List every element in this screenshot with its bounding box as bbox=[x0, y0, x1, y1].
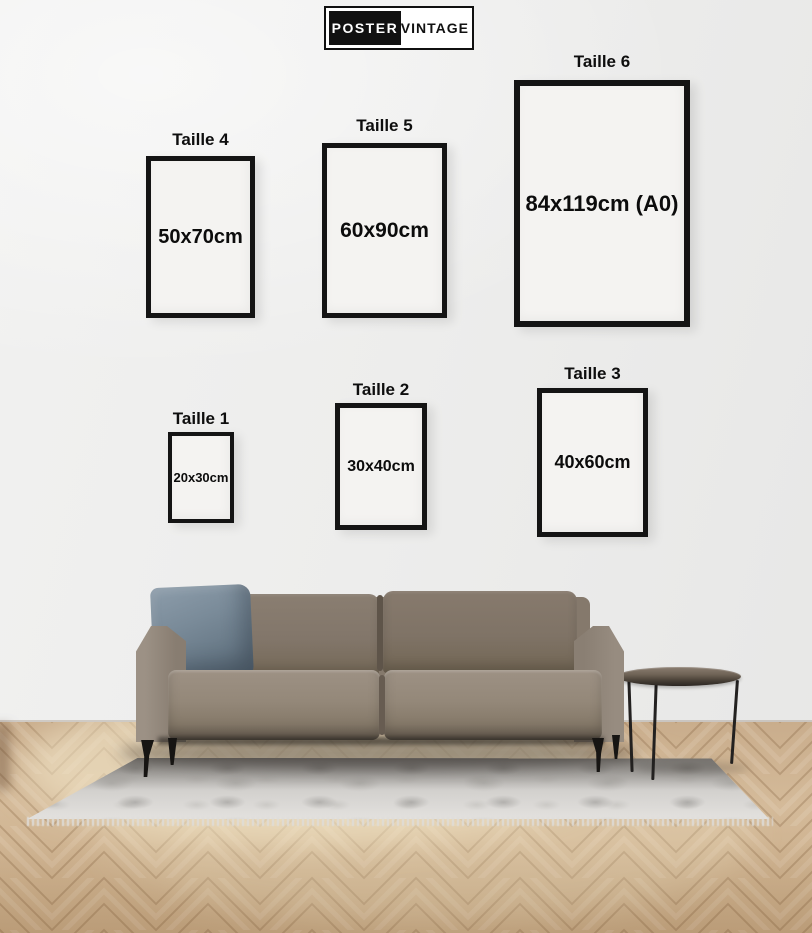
poster-size-guide-scene: POSTER VINTAGE Taille 4 Taille 5 Taille … bbox=[0, 0, 812, 933]
size-dimensions-taille-1: 20x30cm bbox=[174, 470, 229, 485]
logo-vintage-segment: VINTAGE bbox=[401, 11, 469, 45]
sofa bbox=[130, 585, 630, 780]
sofa-back-cushion-right bbox=[383, 591, 577, 673]
size-dimensions-taille-5: 60x90cm bbox=[340, 219, 429, 243]
sofa-seat-cushion-right bbox=[384, 670, 602, 740]
sofa-seat-cushion-left bbox=[168, 670, 380, 740]
sofa-leg-rear-right bbox=[612, 735, 620, 759]
size-frame-taille-3: 40x60cm bbox=[537, 388, 648, 537]
size-dimensions-taille-3: 40x60cm bbox=[554, 452, 630, 473]
sofa-seat-cushion-gap bbox=[379, 675, 385, 735]
size-frame-taille-1: 20x30cm bbox=[168, 432, 234, 523]
logo-poster-segment: POSTER bbox=[329, 11, 401, 45]
sofa-leg-front-left bbox=[140, 740, 154, 777]
size-label-taille-5: Taille 5 bbox=[322, 116, 447, 136]
size-label-taille-3: Taille 3 bbox=[537, 364, 648, 384]
size-frame-taille-6: 84x119cm (A0) bbox=[514, 80, 690, 327]
sofa-base-shadow bbox=[158, 737, 604, 745]
sofa-leg-rear-left bbox=[168, 738, 177, 765]
size-frame-taille-4: 50x70cm bbox=[146, 156, 255, 318]
size-dimensions-taille-6: 84x119cm (A0) bbox=[526, 191, 679, 217]
wall-corner-shadow bbox=[0, 724, 10, 790]
size-dimensions-taille-4: 50x70cm bbox=[158, 226, 243, 249]
size-label-taille-6: Taille 6 bbox=[514, 52, 690, 72]
size-frame-taille-2: 30x40cm bbox=[335, 403, 427, 530]
table-top bbox=[617, 667, 741, 686]
size-label-taille-2: Taille 2 bbox=[335, 380, 427, 400]
size-label-taille-1: Taille 1 bbox=[160, 409, 242, 429]
size-label-taille-4: Taille 4 bbox=[146, 130, 255, 150]
sofa-back-cushion-gap bbox=[377, 595, 383, 671]
size-frame-taille-5: 60x90cm bbox=[322, 143, 447, 318]
rug-fringe bbox=[27, 817, 773, 826]
size-dimensions-taille-2: 30x40cm bbox=[347, 458, 415, 476]
poster-vintage-logo: POSTER VINTAGE bbox=[324, 6, 474, 50]
